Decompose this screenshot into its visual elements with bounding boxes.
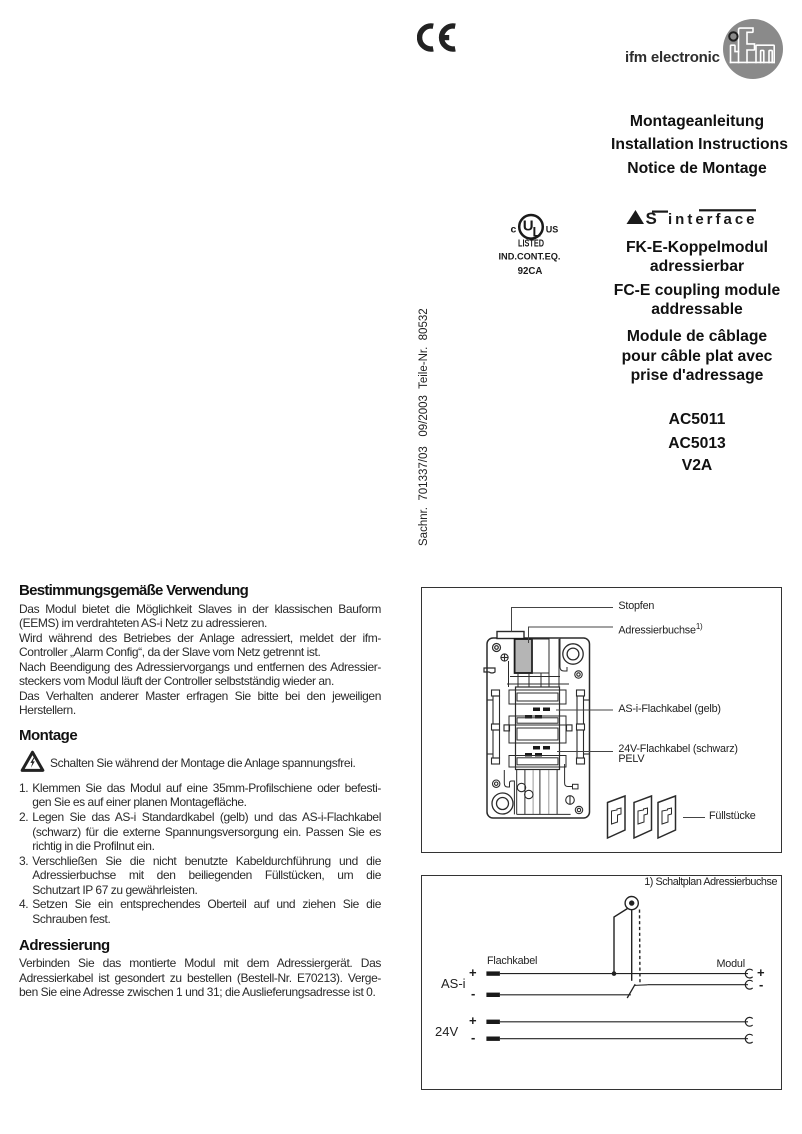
svg-text:92CA: 92CA — [518, 266, 543, 276]
svg-text:LISTED: LISTED — [518, 239, 544, 250]
svg-text:L: L — [533, 225, 541, 240]
svg-text:IND.CONT.EQ.: IND.CONT.EQ. — [499, 252, 561, 262]
svg-text:interface: interface — [668, 211, 758, 226]
svg-text:c: c — [511, 224, 517, 236]
svg-text:US: US — [546, 225, 559, 235]
